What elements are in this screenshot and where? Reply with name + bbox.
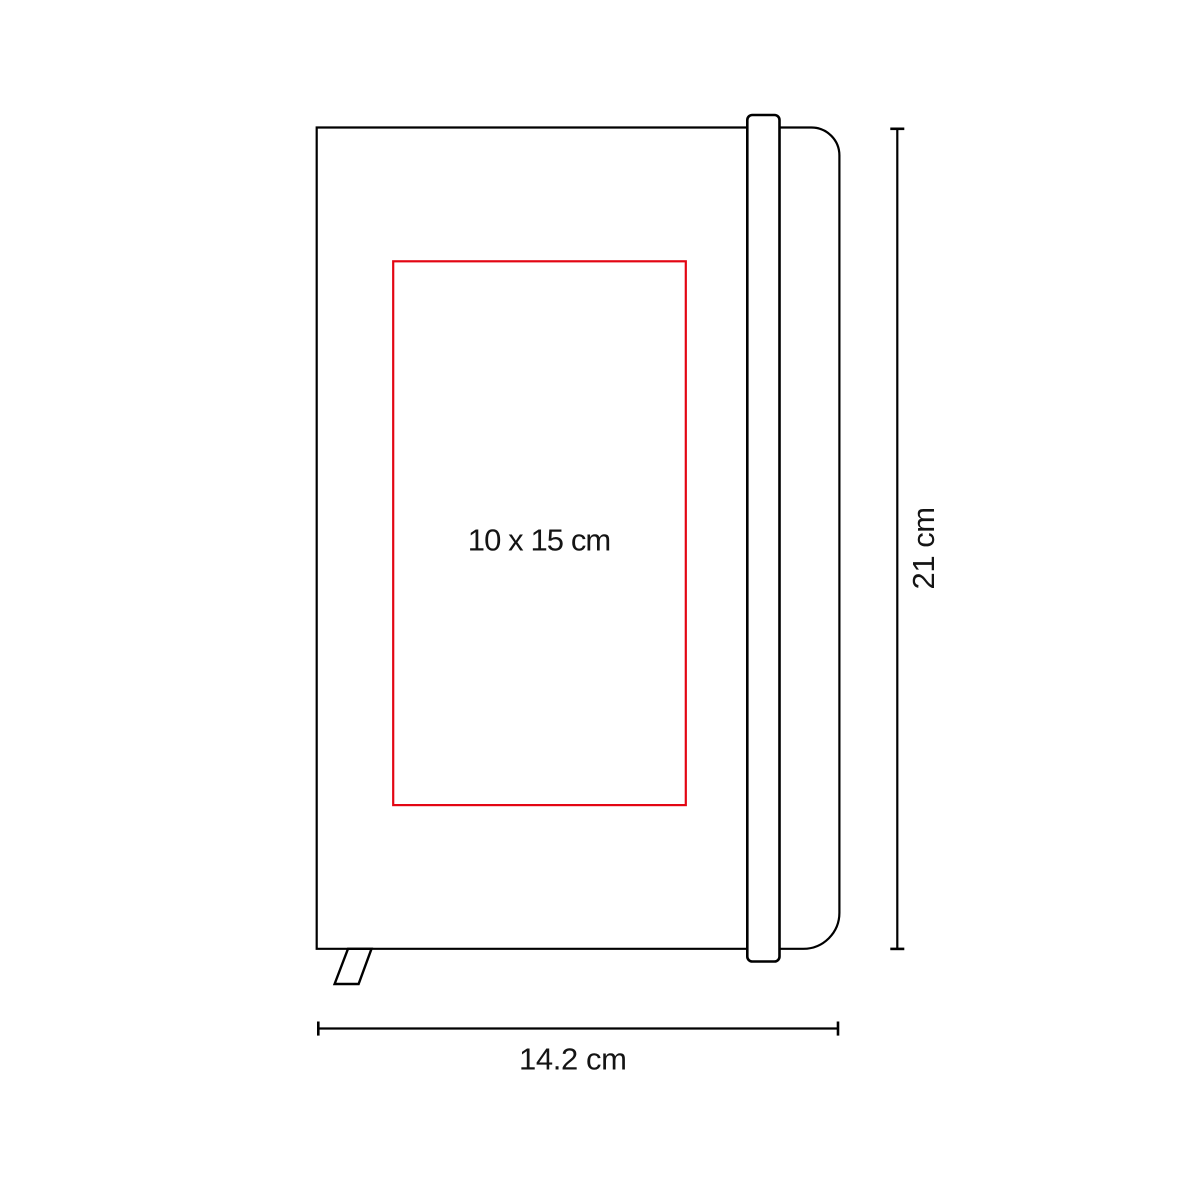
svg-text:14.2 cm: 14.2 cm — [519, 1041, 627, 1076]
svg-text:10 x 15 cm: 10 x 15 cm — [468, 523, 612, 558]
svg-text:21 cm: 21 cm — [906, 507, 941, 590]
